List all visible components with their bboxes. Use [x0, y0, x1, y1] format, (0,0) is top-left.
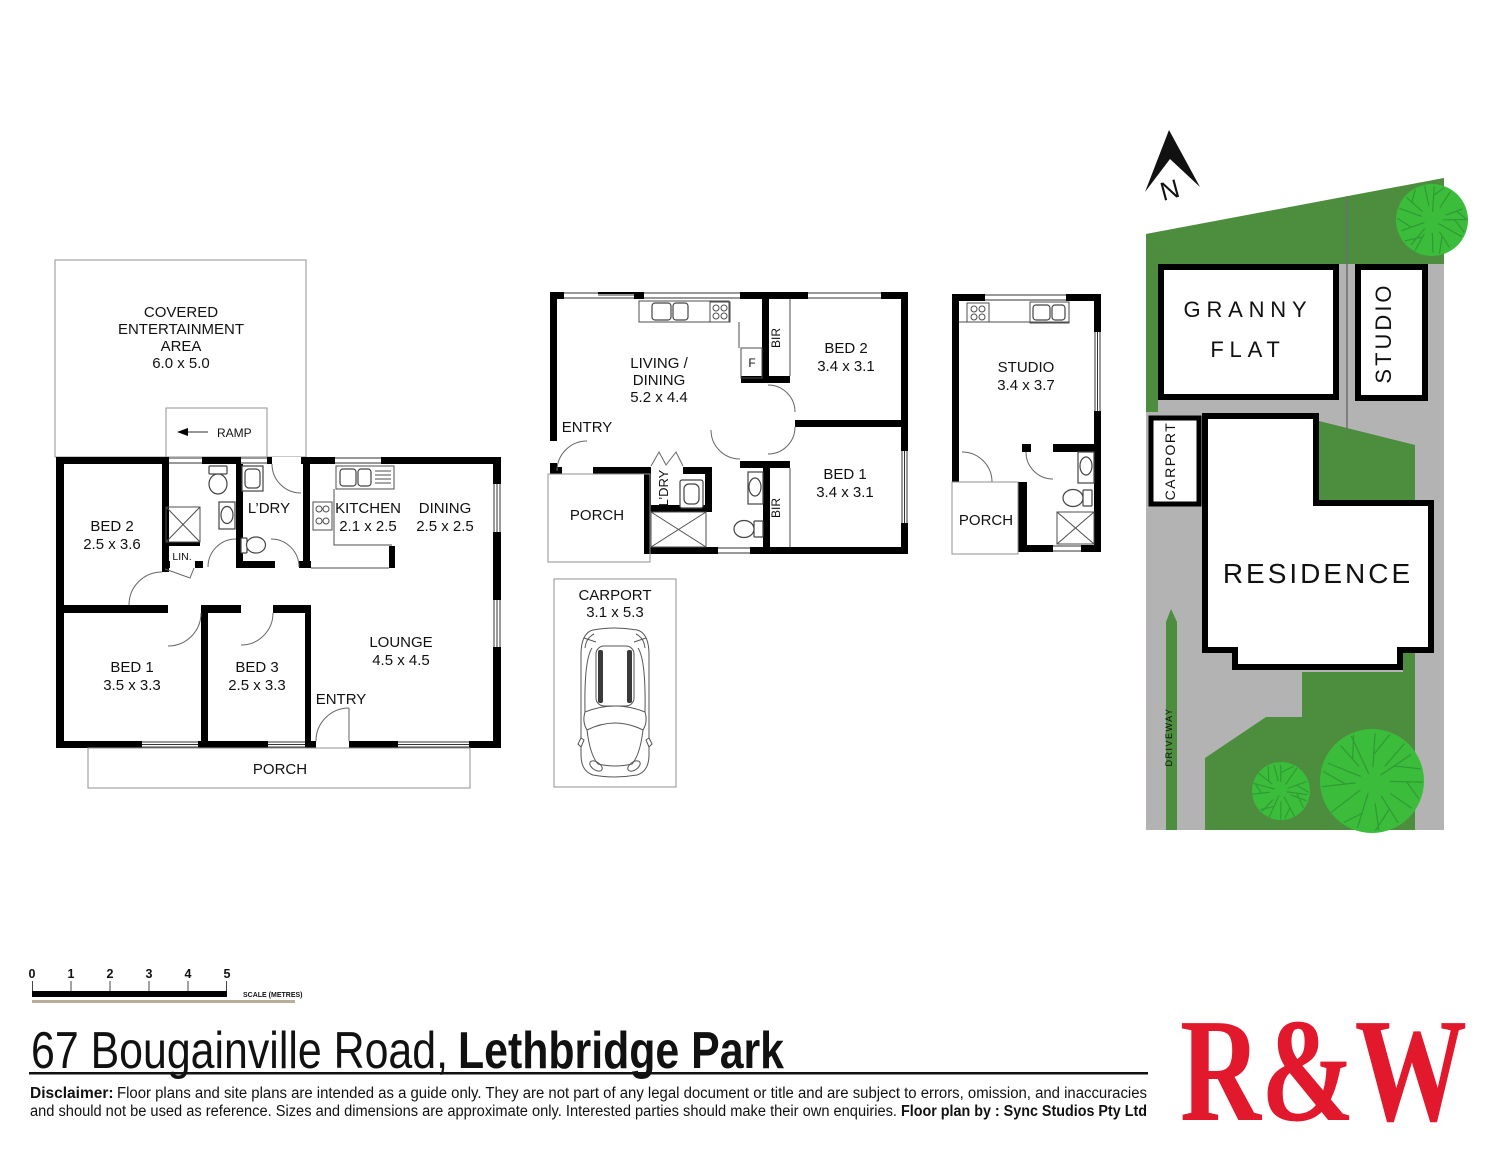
svg-text:F: F — [748, 356, 755, 370]
svg-text:BED 2: BED 2 — [824, 340, 867, 357]
svg-text:DRIVEWAY: DRIVEWAY — [1164, 707, 1174, 766]
svg-text:ENTRY: ENTRY — [562, 419, 613, 436]
svg-text:3.4 x 3.1: 3.4 x 3.1 — [817, 358, 875, 375]
svg-text:KITCHEN: KITCHEN — [335, 500, 401, 517]
svg-text:Lethbridge Park: Lethbridge Park — [458, 1022, 784, 1080]
svg-text:BIR: BIR — [769, 498, 783, 518]
svg-text:ENTRY: ENTRY — [316, 691, 367, 708]
svg-text:R&W: R&W — [1180, 989, 1467, 1150]
svg-text:GRANNY: GRANNY — [1184, 297, 1313, 322]
svg-text:2.5 x 3.6: 2.5 x 3.6 — [83, 536, 141, 553]
svg-text:CARPORT: CARPORT — [1162, 422, 1178, 501]
svg-text:AREA: AREA — [161, 338, 202, 355]
svg-text:RESIDENCE: RESIDENCE — [1223, 558, 1413, 589]
svg-text:LIVING /: LIVING / — [630, 355, 688, 372]
svg-text:4: 4 — [185, 967, 192, 981]
svg-text:BED 2: BED 2 — [90, 518, 133, 535]
svg-text:5.2 x 4.4: 5.2 x 4.4 — [630, 389, 688, 406]
svg-text:2: 2 — [107, 967, 114, 981]
svg-text:BED 1: BED 1 — [110, 659, 153, 676]
svg-text:Disclaimer:: Disclaimer: — [30, 1085, 114, 1102]
svg-text:FLAT: FLAT — [1210, 337, 1285, 362]
svg-text:3.1 x 5.3: 3.1 x 5.3 — [586, 604, 644, 621]
svg-text:PORCH: PORCH — [959, 512, 1013, 529]
svg-text:1: 1 — [68, 967, 75, 981]
svg-text:STUDIO: STUDIO — [998, 359, 1055, 376]
svg-text:RAMP: RAMP — [217, 426, 252, 440]
svg-text:and should not be used as refe: and should not be used as reference. Siz… — [30, 1103, 897, 1120]
svg-text:Floor plan by : Sync Studios P: Floor plan by : Sync Studios Pty Ltd — [901, 1103, 1147, 1120]
svg-text:BIR: BIR — [769, 328, 783, 348]
svg-text:L’DRY: L’DRY — [656, 469, 671, 506]
svg-text:STUDIO: STUDIO — [1371, 282, 1396, 383]
svg-text:4.5 x 4.5: 4.5 x 4.5 — [372, 652, 430, 669]
svg-text:LIN.: LIN. — [172, 551, 191, 563]
svg-text:DINING: DINING — [633, 372, 686, 389]
svg-text:67 Bougainville Road,: 67 Bougainville Road, — [31, 1022, 448, 1080]
svg-text:2.5 x 3.3: 2.5 x 3.3 — [228, 677, 286, 694]
svg-text:3.4 x 3.7: 3.4 x 3.7 — [997, 377, 1055, 394]
svg-text:3.4 x 3.1: 3.4 x 3.1 — [816, 484, 874, 501]
svg-text:5: 5 — [224, 967, 231, 981]
svg-text:DINING: DINING — [419, 500, 472, 517]
svg-text:BED 3: BED 3 — [235, 659, 278, 676]
svg-text:SCALE (METRES): SCALE (METRES) — [243, 992, 303, 999]
svg-text:PORCH: PORCH — [570, 507, 624, 524]
svg-text:Floor plans and site plans are: Floor plans and site plans are intended … — [117, 1085, 1147, 1102]
svg-text:ENTERTAINMENT: ENTERTAINMENT — [118, 321, 244, 338]
svg-text:2.1 x 2.5: 2.1 x 2.5 — [339, 518, 397, 535]
svg-text:L’DRY: L’DRY — [248, 500, 290, 517]
svg-text:3: 3 — [146, 967, 153, 981]
svg-text:6.0 x 5.0: 6.0 x 5.0 — [152, 355, 210, 372]
svg-text:0: 0 — [29, 967, 36, 981]
svg-text:LOUNGE: LOUNGE — [369, 634, 432, 651]
svg-text:3.5 x 3.3: 3.5 x 3.3 — [103, 677, 161, 694]
svg-text:COVERED: COVERED — [144, 304, 218, 321]
svg-text:CARPORT: CARPORT — [578, 587, 651, 604]
svg-text:2.5 x 2.5: 2.5 x 2.5 — [416, 518, 474, 535]
svg-text:BED 1: BED 1 — [823, 466, 866, 483]
svg-text:PORCH: PORCH — [253, 761, 307, 778]
